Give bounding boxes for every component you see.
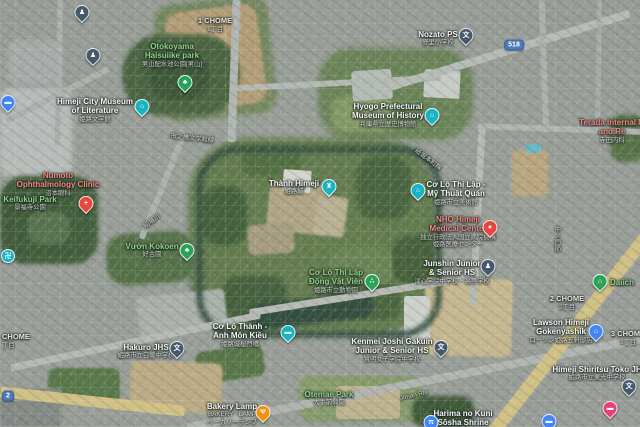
label-bakery-lamp[interactable]: Bakery LampBAKERY - LAMP ベーカリーランプ <box>207 402 257 426</box>
store-icon: ⌂ <box>590 325 603 338</box>
bed-icon: ▬ <box>604 402 617 415</box>
store-icon: ⌂ <box>594 275 607 288</box>
torii-icon: π <box>425 416 438 427</box>
museum-icon: ⌂ <box>136 100 149 113</box>
label-chome-left: CHOME丁目 <box>2 333 30 349</box>
label-city-zoo[interactable]: Cơ Lộ Thị LậpĐộng Vật Viên 姫路市立動物園 <box>309 268 363 294</box>
terrain-patch <box>512 150 548 196</box>
label-sakuramon-bridge[interactable]: Cơ Lộ Thành -Anh Môn Kiều 姫路城桜門橋 <box>213 322 268 348</box>
label-2-chome: 2 CHOME2丁目 <box>550 295 584 311</box>
hotel-pin[interactable]: ▬ <box>599 398 620 419</box>
castle-moat <box>196 146 442 338</box>
person-pin[interactable]: ♟ <box>82 45 103 66</box>
label-himeji-castle[interactable]: Thành Himeji姫路城 <box>269 179 319 196</box>
label-daiichi[interactable]: Daiich <box>610 278 634 287</box>
label-junshin-hs[interactable]: Junshin Junior& Senior HS 淳心学院中学校・高等学校 <box>414 259 490 285</box>
label-otemae-park[interactable]: Otemae Park大手前公園 <box>305 390 354 407</box>
label-nakanomon-st: 中ノ門筋 <box>553 226 560 251</box>
label-museum-of-history[interactable]: Hyogo PrefecturalMuseum of History 兵庫県立歴… <box>352 102 424 128</box>
label-otokoyama-park[interactable]: OtokoyamaHaisuiike park 男山配水池公園[男山] <box>142 42 202 68</box>
label-sosha-shrine[interactable]: Harima no KuniSōsha Shrine <box>433 409 492 427</box>
medical-cross-icon: + <box>80 197 93 210</box>
label-museum-of-literature[interactable]: Himeji City Museumof Literature 姫路文学館 <box>57 97 133 123</box>
road <box>539 0 550 132</box>
terrain-patch <box>28 212 70 244</box>
paw-icon: ∴ <box>366 275 379 288</box>
person-icon: ♟ <box>76 6 89 19</box>
school-icon: 文 <box>623 380 636 393</box>
road <box>595 0 602 118</box>
bridge-icon: ▬ <box>282 326 295 339</box>
label-city-art-museum[interactable]: Cơ Lộ Thị Lập -Mỹ Thuật Quán 姫路市立美術館 <box>426 180 485 206</box>
manji-icon: 卍 <box>2 250 14 262</box>
hospital-icon: ● <box>484 221 497 234</box>
terrain-patch <box>8 40 63 85</box>
map-canvas[interactable]: 518 2 1 CHOME1丁目 OtokoyamaHaisuiike park… <box>0 0 640 427</box>
school-icon: 文 <box>171 342 184 355</box>
label-senba-river: 船場川 <box>142 213 161 230</box>
school-icon: 文 <box>435 341 448 354</box>
store-icon: ▬ <box>543 415 556 427</box>
label-hakuro-jhs[interactable]: Hakuro JHS姫路市立白鷺中学校 <box>118 343 175 360</box>
temple-pin[interactable]: 卍 <box>1 249 15 263</box>
label-kenmei-hs[interactable]: Kenmei Joshi GakuinJunior & Senior HS 賢明… <box>351 337 432 363</box>
tree-icon: ♣ <box>179 76 192 89</box>
museum-icon: ⌂ <box>412 184 425 197</box>
person-pin[interactable]: ♟ <box>71 2 92 23</box>
route-badge-2: 2 <box>2 391 14 402</box>
castle-icon: ♜ <box>323 180 336 193</box>
label-nozato-ps[interactable]: Nozato PS野里小学校 <box>418 30 458 47</box>
route-badge-518: 518 <box>504 40 524 51</box>
label-3-chome: 3 CHOME3丁目 <box>611 330 640 346</box>
fork-icon: Ψ <box>257 406 270 419</box>
label-1-chome: 1 CHOME1丁目 <box>198 17 232 33</box>
label-terada-clinic[interactable]: Terada Internal Mand Re 寺田内科 <box>579 118 640 144</box>
school-icon: 文 <box>460 29 473 42</box>
label-kokoen-garden[interactable]: Vườn Kokoen好古園 <box>125 242 178 259</box>
label-keifukuji-park[interactable]: Keifukuji Park景福寺公園 <box>3 195 56 212</box>
label-lawson[interactable]: Lawson HimejiGokenyashik ローソン姫路五軒邸店 <box>530 318 593 344</box>
person-icon: ♟ <box>482 260 495 273</box>
station-pin[interactable]: ▬ <box>538 411 559 427</box>
tree-icon: ♣ <box>181 244 194 257</box>
label-numoto-clinic[interactable]: NumotoOphthalmology Clinic 沼本眼科 <box>17 171 100 197</box>
person-icon: ♟ <box>87 49 100 62</box>
museum-icon: ⌂ <box>426 109 439 122</box>
store-icon: ▬ <box>2 96 15 109</box>
nozato-school-pin[interactable]: 文 <box>455 25 476 46</box>
terrain-patch <box>526 144 541 153</box>
